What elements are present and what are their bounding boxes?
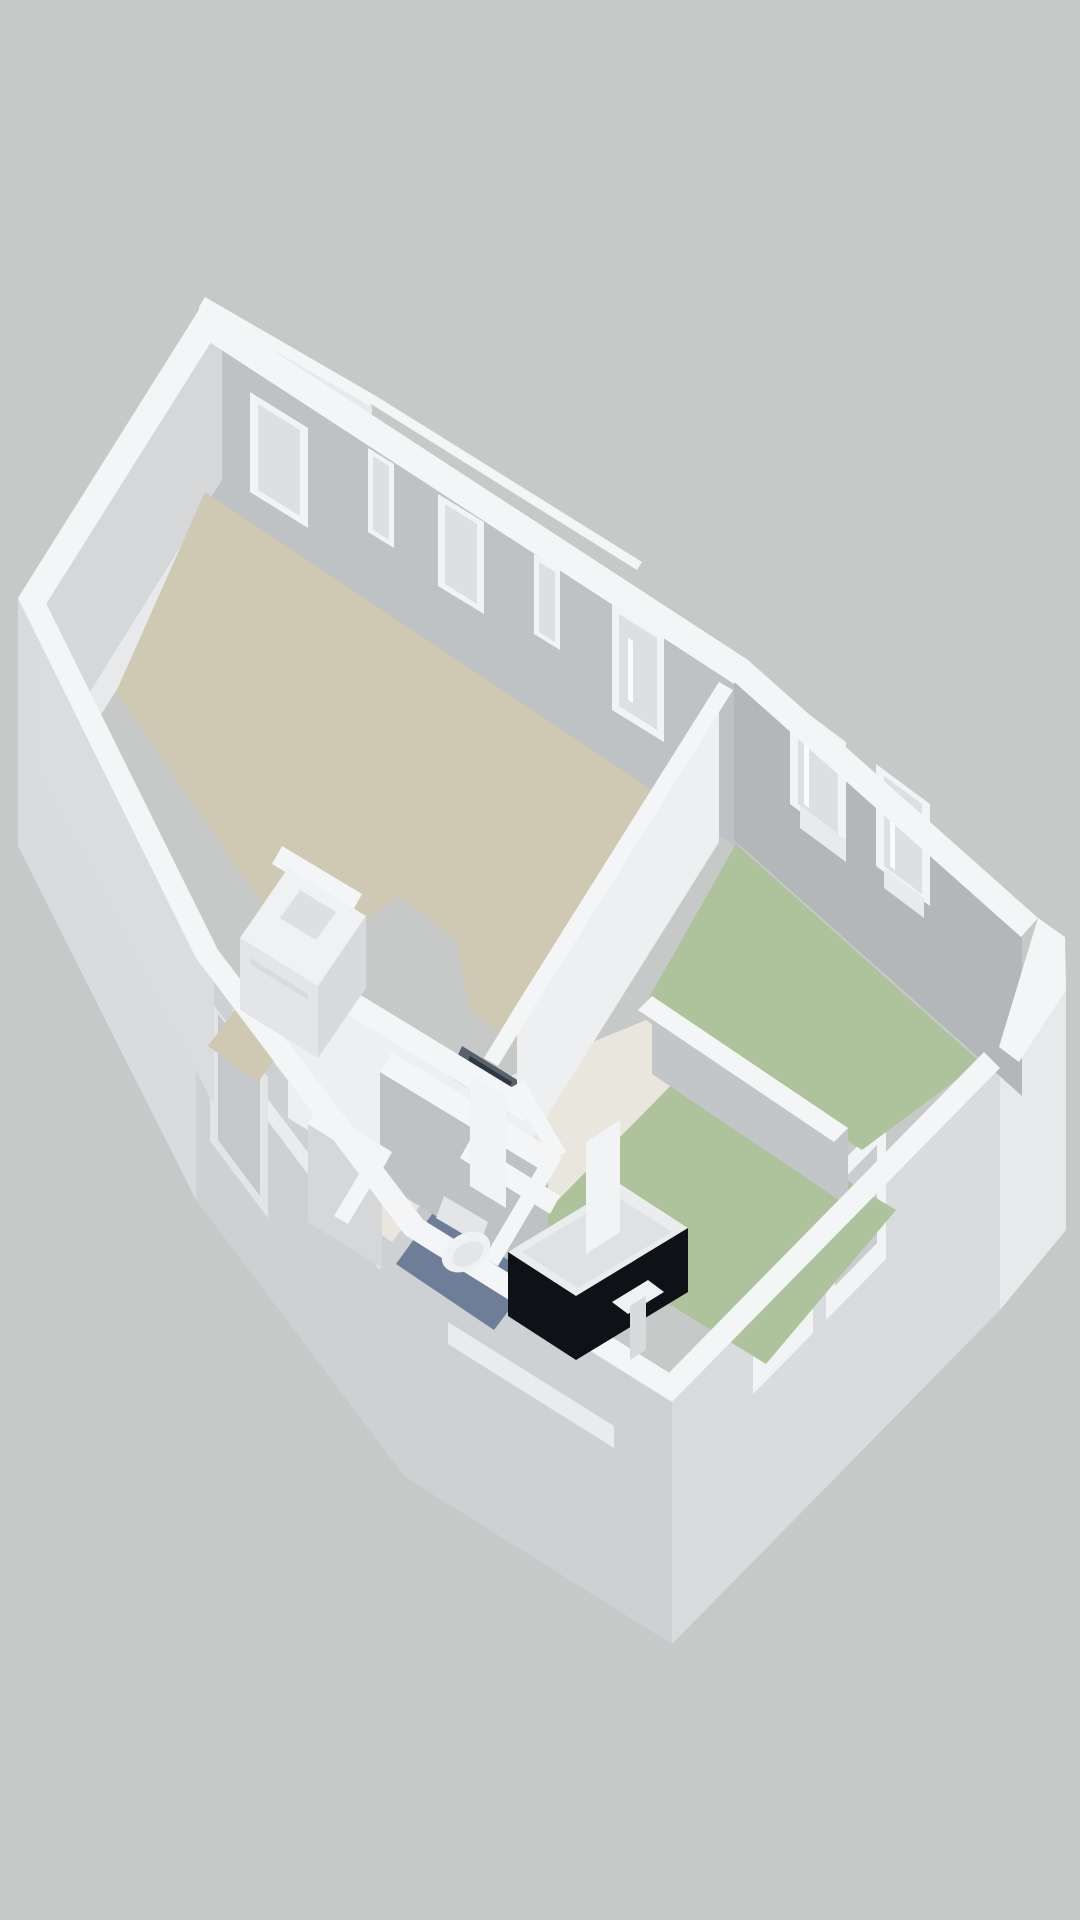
washbasin-pedestal [630,1296,646,1360]
floorplan-3d-render [0,0,1080,1920]
bathroom-door-leaf [470,1074,506,1208]
bedroom1-window-1-handle [804,740,809,808]
bedroom1-door-handle [628,638,633,703]
floorplan-3d-viewport[interactable] [0,0,1080,1920]
living-window-4-glass [539,562,555,642]
bedroom2-door-leaf [586,1120,620,1254]
living-window-2-glass [373,456,389,540]
